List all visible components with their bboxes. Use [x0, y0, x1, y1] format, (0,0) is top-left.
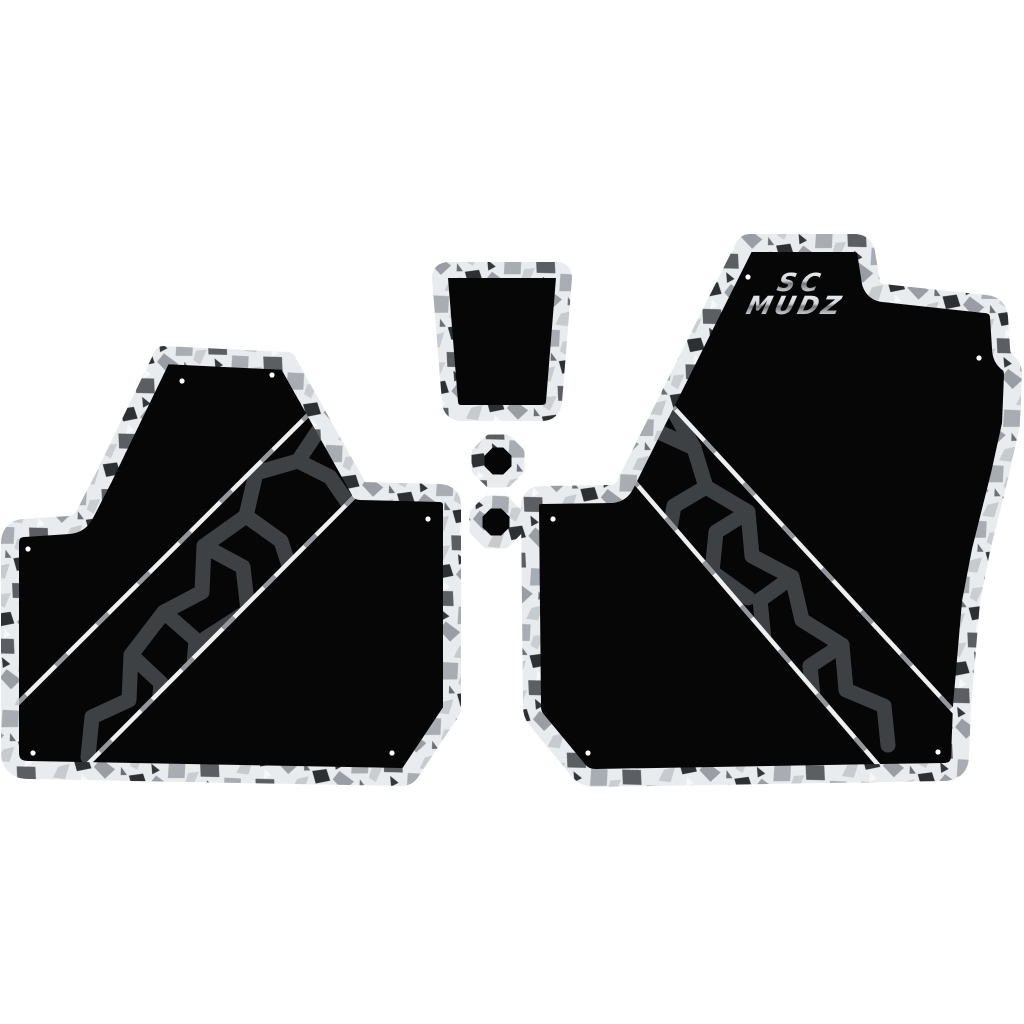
mounting-hole [269, 372, 274, 377]
console-pad-base [440, 270, 564, 413]
mounting-hole [745, 274, 750, 279]
mounting-hole [935, 749, 940, 754]
mounting-hole [30, 750, 35, 755]
floor-mat-set-graphic: SC MUDZ [0, 0, 1024, 1024]
product-image-canvas: SC MUDZ [0, 0, 1024, 1024]
lower-octagon-plug [476, 502, 516, 542]
logo-line-2: MUDZ [744, 290, 847, 320]
mounting-hole [425, 516, 430, 521]
right-floor-mat: SC MUDZ [530, 243, 1013, 778]
mounting-hole [25, 546, 30, 551]
left-floor-mat [6, 355, 452, 777]
mounting-hole [179, 378, 184, 383]
mounting-hole [550, 516, 555, 521]
mounting-hole [585, 750, 590, 755]
mounting-hole [976, 355, 981, 360]
upper-octagon-plug [478, 441, 518, 481]
mounting-hole [389, 750, 394, 755]
center-console-pad [440, 270, 564, 413]
